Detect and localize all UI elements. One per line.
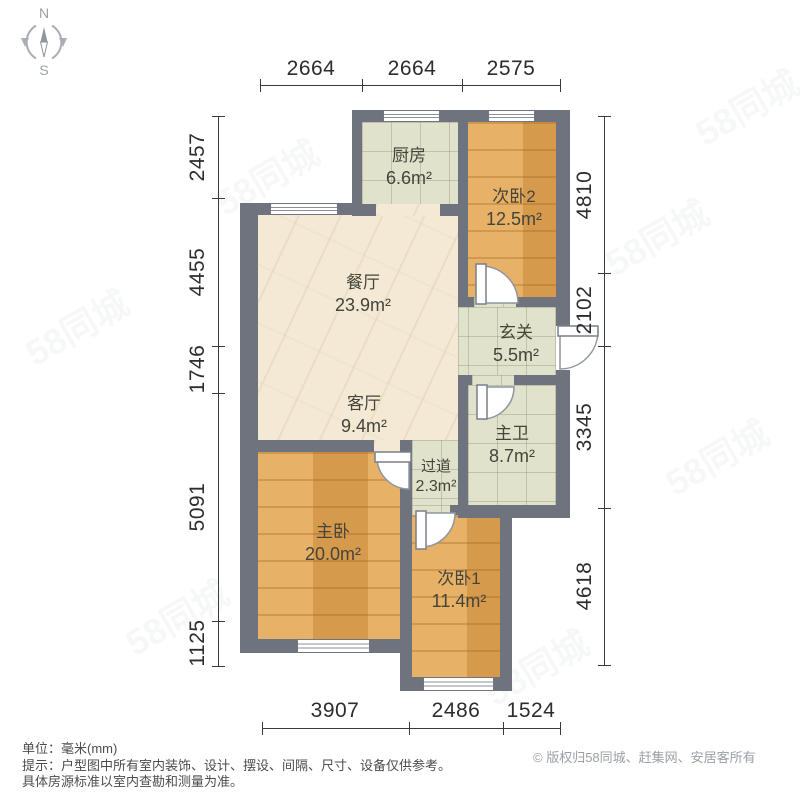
- dim-tick: [260, 79, 261, 92]
- wall-bath-left: [458, 375, 468, 518]
- dim-right-1: 4810: [573, 171, 597, 220]
- dim-bottom-1: 3907: [311, 699, 360, 723]
- wall-living-master: [240, 440, 374, 452]
- wall-kitchen-bedroom2: [458, 122, 468, 216]
- master-door-opening: [374, 440, 400, 452]
- compass-south-label: S: [39, 62, 48, 78]
- dim-tick: [362, 79, 363, 92]
- watermark: 58同城: [655, 405, 778, 506]
- master-bedroom-window: [297, 639, 370, 653]
- room-label-living: 客厅 9.4m²: [341, 393, 387, 437]
- room-area: 6.6m²: [386, 167, 432, 189]
- room-name: 次卧1: [432, 568, 487, 590]
- room-area: 5.5m²: [493, 344, 539, 366]
- bedroom1-window: [423, 677, 494, 691]
- dim-tick: [598, 508, 611, 509]
- kitchen-window: [383, 110, 440, 122]
- dim-tick: [598, 273, 611, 274]
- dim-tick: [212, 198, 225, 199]
- room-label-hallway: 过道 2.3m²: [416, 457, 457, 497]
- room-label-kitchen: 厨房 6.6m²: [386, 145, 432, 189]
- dim-left-2: 4455: [186, 248, 210, 297]
- dim-tick: [212, 621, 225, 622]
- kitchen-opening: [376, 204, 440, 216]
- tip-line-2: 具体房源标准以室内查勘和测量为准。: [22, 771, 243, 790]
- wall-bedroom1-right: [500, 518, 512, 691]
- compass-needle-north: [41, 27, 48, 42]
- wall-bedroom2-entry-left: [458, 297, 474, 307]
- dim-right-4: 4618: [573, 562, 597, 611]
- watermark: 58同城: [115, 565, 238, 666]
- dim-tick: [503, 722, 504, 735]
- wall-bedroom1-left: [400, 503, 412, 691]
- dim-line-top: [260, 85, 560, 86]
- wall-bedroom2-entry-right: [516, 297, 556, 307]
- room-area: 23.9m²: [335, 294, 391, 316]
- wall-dining-entry: [458, 203, 468, 307]
- room-label-dining: 餐厅 23.9m²: [335, 272, 391, 316]
- dim-bottom-3: 1524: [507, 699, 556, 723]
- dim-line-bottom: [262, 728, 560, 729]
- bedroom2-door-opening: [474, 297, 516, 307]
- dim-left-5: 1125: [186, 619, 210, 666]
- wall-entry-bath-right: [514, 375, 556, 385]
- room-name: 主卧: [305, 521, 361, 543]
- dim-tick: [212, 666, 225, 667]
- dim-line-right: [604, 116, 605, 665]
- room-label-bedroom1: 次卧1 11.4m²: [432, 568, 487, 612]
- compass-north-label: N: [39, 5, 49, 21]
- room-name: 主卫: [489, 423, 535, 445]
- entry-door-opening: [556, 326, 570, 370]
- room-name: 玄关: [493, 322, 539, 344]
- wall-right-outer: [556, 110, 570, 518]
- compass-needle-south: [41, 42, 48, 57]
- room-name: 餐厅: [335, 272, 391, 294]
- copyright-notice: © 版权归58同城、赶集网、安居客所有: [533, 747, 756, 766]
- wall-bath-bottom: [458, 505, 570, 518]
- room-area: 20.0m²: [305, 543, 361, 565]
- room-label-master-bedroom: 主卧 20.0m²: [305, 521, 361, 565]
- dim-bottom-2: 2486: [432, 699, 481, 723]
- watermark: 58同城: [685, 55, 800, 156]
- room-label-master-bath: 主卫 8.7m²: [489, 423, 535, 467]
- dim-left-4: 5091: [186, 483, 210, 532]
- watermark: 58同城: [15, 275, 138, 376]
- compass-icon: N S: [14, 4, 74, 78]
- bath-door-opening: [472, 375, 514, 385]
- room-area: 12.5m²: [486, 208, 542, 230]
- room-area: 2.3m²: [416, 477, 457, 497]
- wall-left-outer: [240, 203, 258, 653]
- dim-tick: [462, 79, 463, 92]
- dim-tick: [262, 722, 263, 735]
- dim-tick: [409, 722, 410, 735]
- wall-kitchen-bottom-left: [352, 204, 376, 216]
- floorplan-page: 58同城 58同城 58同城 58同城 58同城 58同城 58同城 58同城 …: [0, 0, 800, 800]
- dim-tick: [598, 116, 611, 117]
- wall-kitchen-left: [352, 110, 362, 216]
- dim-tick: [598, 665, 611, 666]
- wall-bedroom1-top-stub: [450, 505, 468, 515]
- room-area: 11.4m²: [432, 590, 487, 612]
- dim-left-1: 2457: [186, 133, 210, 182]
- watermark: 58同城: [595, 185, 718, 286]
- bedroom2-window: [488, 110, 535, 122]
- room-name: 厨房: [386, 145, 432, 167]
- room-name: 客厅: [341, 393, 387, 415]
- room-area: 8.7m²: [489, 445, 535, 467]
- dim-tick: [212, 116, 225, 117]
- dim-top-3: 2575: [487, 57, 536, 81]
- room-label-entry: 玄关 5.5m²: [493, 322, 539, 366]
- dim-tick: [212, 346, 225, 347]
- room-name: 过道: [416, 457, 457, 477]
- dim-left-3: 1746: [186, 345, 210, 394]
- room-area: 9.4m²: [341, 415, 387, 437]
- dim-tick: [212, 393, 225, 394]
- dining-window: [270, 203, 338, 215]
- dim-tick: [598, 346, 611, 347]
- dim-top-1: 2664: [287, 57, 336, 81]
- dim-tick: [560, 722, 561, 735]
- entry-opening: [458, 307, 468, 375]
- dim-right-2: 2102: [573, 286, 597, 335]
- room-label-bedroom2: 次卧2 12.5m²: [486, 186, 542, 230]
- dim-top-2: 2664: [388, 57, 437, 81]
- room-name: 次卧2: [486, 186, 542, 208]
- dim-tick: [560, 79, 561, 92]
- dim-right-3: 3345: [573, 403, 597, 452]
